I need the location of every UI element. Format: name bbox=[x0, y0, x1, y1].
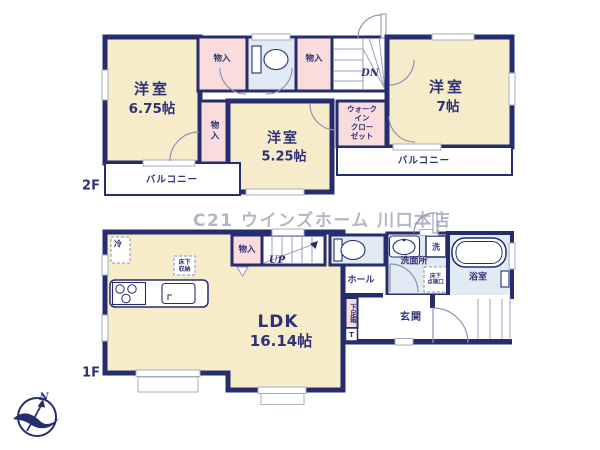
ldk-size: 16.14帖 bbox=[250, 333, 312, 351]
ldk-name: LDK bbox=[257, 312, 298, 332]
floor2-label: 2F bbox=[82, 178, 100, 193]
bedroom-7-size: 7帖 bbox=[437, 100, 460, 116]
sink-icon bbox=[390, 236, 420, 257]
balcony-right-label: バルコニー bbox=[398, 155, 450, 166]
balcony-left-label: バルコニー bbox=[146, 174, 198, 185]
kitchen-counter bbox=[110, 280, 208, 307]
bedroom-525-name: 洋室 bbox=[267, 131, 299, 148]
floorplan-drawing bbox=[0, 0, 600, 450]
shoe-box-mark: T bbox=[349, 330, 354, 338]
bedroom-525-size: 5.25帖 bbox=[261, 149, 306, 164]
toilet-icon-1f bbox=[334, 239, 365, 261]
stairs-down-label: DN bbox=[361, 68, 379, 80]
closet-1f-label: 物入 bbox=[238, 245, 255, 255]
walk-in-closet-label: ウォーク イン クロー ゼット bbox=[347, 105, 377, 140]
washer-label: 洗 bbox=[432, 242, 440, 251]
bathroom-label: 浴室 bbox=[469, 273, 487, 284]
compass-icon bbox=[13, 398, 59, 436]
fridge-label: 冷 bbox=[114, 239, 122, 248]
bedroom-675-size: 6.75帖 bbox=[129, 102, 176, 118]
entrance-area bbox=[346, 295, 510, 342]
kitchen-stove-icon bbox=[113, 283, 146, 305]
stairs-up-label: UP bbox=[269, 255, 285, 267]
compass-north-label: N bbox=[39, 392, 48, 404]
floorplan-page: C21 ウインズホーム 川口本店 bbox=[0, 0, 600, 450]
closet-b-label: 物入 bbox=[305, 54, 322, 64]
wall-1f-bottom bbox=[341, 339, 512, 345]
washroom-label: 洗面所 bbox=[400, 257, 427, 268]
door-top-2f bbox=[358, 14, 386, 38]
bedroom-7-name: 洋室 bbox=[429, 79, 465, 97]
closet-a-label: 物入 bbox=[213, 54, 230, 64]
stairs-2f bbox=[332, 37, 387, 91]
bedroom-675-room bbox=[105, 37, 200, 163]
floor1-plan bbox=[102, 213, 515, 405]
entrance-window bbox=[395, 339, 413, 346]
floor1-label: 1F bbox=[82, 365, 100, 380]
closet-c-label: 物入 bbox=[209, 121, 219, 142]
underfloor-storage-label: 床下 収納 bbox=[178, 258, 190, 272]
shoe-box-label: 下足箱 bbox=[348, 303, 356, 323]
kitchen-sink-icon bbox=[162, 284, 195, 304]
hall-label: ホール bbox=[347, 276, 374, 287]
bedroom-675-name: 洋室 bbox=[134, 81, 170, 99]
wall-hall-entrance bbox=[341, 293, 383, 298]
underfloor-hatch-label: 床下 点検口 bbox=[427, 274, 444, 287]
entrance-label: 玄関 bbox=[400, 312, 422, 324]
